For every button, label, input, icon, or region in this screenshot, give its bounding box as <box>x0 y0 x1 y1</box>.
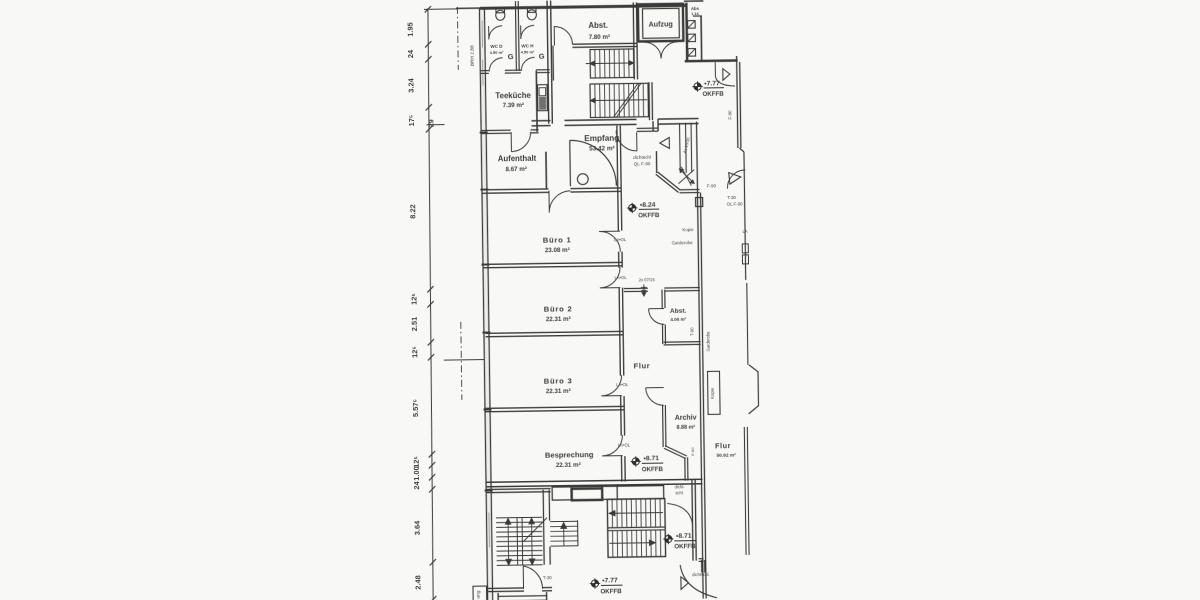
svg-text:1.00: 1.00 <box>412 466 421 481</box>
svg-text:•7.77: •7.77 <box>602 577 618 584</box>
svg-text:LA•OL: LA•OL <box>618 443 631 448</box>
svg-text:Büro 2: Büro 2 <box>544 304 573 313</box>
svg-text:Abst.: Abst. <box>670 308 687 315</box>
svg-text:•8.71: •8.71 <box>676 533 692 540</box>
svg-text:schl.: schl. <box>675 490 684 495</box>
svg-text:dichl-: dichl- <box>675 484 686 489</box>
svg-text:17⁵: 17⁵ <box>407 114 416 126</box>
svg-text:LA•OL: LA•OL <box>614 237 627 242</box>
svg-text:22.31 m²: 22.31 m² <box>546 388 571 395</box>
svg-text:T-90: T-90 <box>689 327 694 336</box>
svg-text:2.51: 2.51 <box>410 317 419 332</box>
svg-text:OKFFB: OKFFB <box>642 466 664 473</box>
svg-text:2.48: 2.48 <box>413 575 422 590</box>
svg-text:OKFFB: OKFFB <box>638 212 660 219</box>
svg-text:Abst.: Abst. <box>588 21 608 30</box>
svg-text:2x 07/15: 2x 07/15 <box>639 277 656 282</box>
svg-text:F-90: F-90 <box>727 110 732 120</box>
svg-text:WC H: WC H <box>521 43 534 48</box>
svg-text:dichtschl.: dichtschl. <box>692 572 710 577</box>
svg-text:Empfang: Empfang <box>584 134 619 143</box>
svg-text:Archiv: Archiv <box>675 415 697 422</box>
svg-text:LA•OL: LA•OL <box>616 382 629 387</box>
svg-text:12⁵: 12⁵ <box>410 346 419 358</box>
svg-text:12⁵: 12⁵ <box>412 456 421 468</box>
svg-text:4.06 m²: 4.06 m² <box>670 317 686 322</box>
svg-text:1.16: 1.16 <box>691 12 698 16</box>
svg-text:ung: ung <box>477 590 482 598</box>
svg-text:Kopie: Kopie <box>710 387 715 399</box>
svg-text:Garderobe: Garderobe <box>672 240 694 245</box>
svg-text:24: 24 <box>406 49 415 58</box>
svg-text:LA: LA <box>742 229 747 234</box>
svg-text:Büro 3: Büro 3 <box>544 376 573 385</box>
svg-text:8.67 m²: 8.67 m² <box>505 166 526 173</box>
svg-text:Flur: Flur <box>715 441 731 450</box>
svg-text:Flur: Flur <box>633 361 650 370</box>
svg-text:T-30: T-30 <box>543 575 552 580</box>
svg-text:12⁵: 12⁵ <box>409 293 418 305</box>
svg-text:4.50 m²: 4.50 m² <box>521 49 536 54</box>
svg-text:T-30: T-30 <box>727 195 736 200</box>
svg-text:G: G <box>508 52 514 61</box>
svg-text:8.22: 8.22 <box>408 204 417 219</box>
svg-text:23.08 m²: 23.08 m² <box>545 247 570 254</box>
svg-text:•8.24: •8.24 <box>640 202 656 209</box>
svg-text:7.80 m²: 7.80 m² <box>589 34 610 41</box>
svg-text:4.50 m²: 4.50 m² <box>490 50 505 55</box>
svg-text:dichtschl: dichtschl <box>633 155 651 160</box>
svg-text:OL F-90: OL F-90 <box>727 201 744 206</box>
svg-text:Aufzug: Aufzug <box>648 19 672 28</box>
svg-text:OKFFB: OKFFB <box>674 543 696 550</box>
svg-text:G: G <box>539 52 545 61</box>
svg-text:22.31 m²: 22.31 m² <box>546 316 571 323</box>
svg-text:3.24: 3.24 <box>406 77 415 92</box>
svg-text:Abs: Abs <box>691 6 700 11</box>
svg-text:22.31 m²: 22.31 m² <box>556 462 581 469</box>
svg-text:OKFFB: OKFFB <box>702 91 724 98</box>
svg-text:BRH 2.88: BRH 2.88 <box>469 45 475 66</box>
svg-text:29: 29 <box>428 119 435 127</box>
svg-text:Kopie: Kopie <box>682 227 694 232</box>
svg-text:8.88 m²: 8.88 m² <box>676 425 695 431</box>
svg-text:LA•OL: LA•OL <box>615 275 628 280</box>
svg-text:7.39 m²: 7.39 m² <box>503 102 524 109</box>
svg-text:F-90: F-90 <box>690 447 695 456</box>
svg-text:Teeküche: Teeküche <box>495 91 531 101</box>
svg-text:•7.77: •7.77 <box>704 80 720 87</box>
svg-text:QL F-90: QL F-90 <box>634 161 651 166</box>
svg-text:Aufenthalt: Aufenthalt <box>498 154 537 164</box>
svg-text:24: 24 <box>412 480 421 489</box>
svg-text:Besprechung: Besprechung <box>545 450 594 460</box>
svg-text:50.92 m²: 50.92 m² <box>717 453 737 459</box>
svg-text:5.57⁵: 5.57⁵ <box>411 399 420 418</box>
svg-text:•8.71: •8.71 <box>643 455 659 462</box>
svg-text:Garderobe: Garderobe <box>705 331 710 352</box>
svg-text:3.64: 3.64 <box>413 520 422 535</box>
svg-text:WC D: WC D <box>490 44 503 49</box>
svg-text:F-90: F-90 <box>707 183 717 188</box>
svg-text:Büro 1: Büro 1 <box>543 235 572 244</box>
svg-text:OKFFB: OKFFB <box>600 588 622 595</box>
svg-text:1.95: 1.95 <box>406 22 415 37</box>
